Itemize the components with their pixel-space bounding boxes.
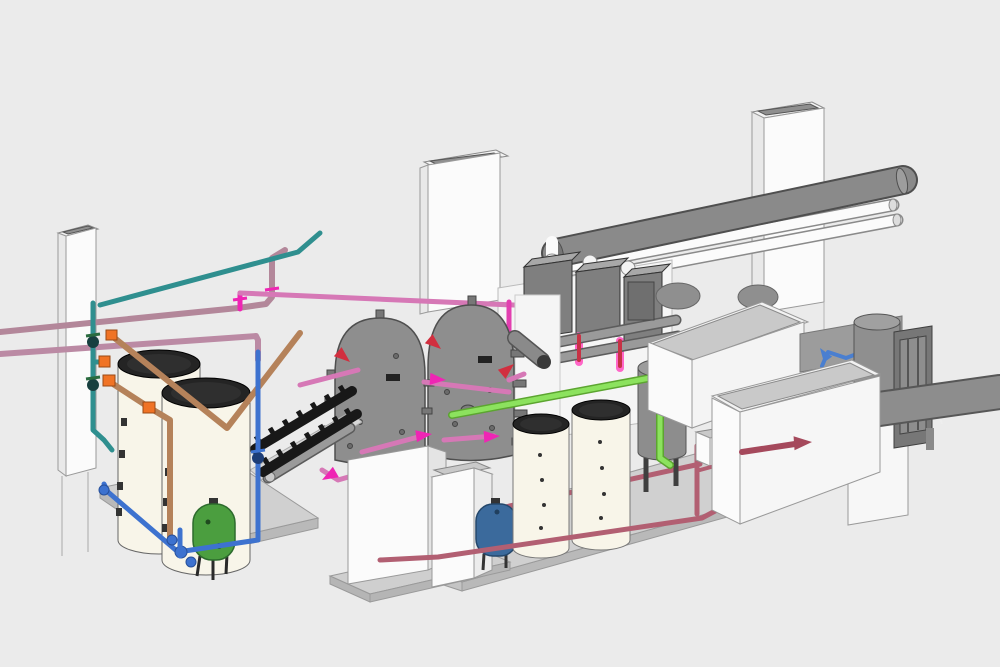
scene-canvas [0,0,1000,667]
fan-dome-1 [656,283,700,309]
center-duct-column-lower [348,446,446,584]
orange-elbow [106,330,117,340]
orange-fitting [99,356,110,367]
orange-elbow [143,402,155,413]
plant-room-render [0,0,1000,667]
center-duct-column [420,150,508,314]
orange-elbow [103,375,115,386]
dhw-cylinders [513,400,630,558]
dark-panel [628,282,654,320]
